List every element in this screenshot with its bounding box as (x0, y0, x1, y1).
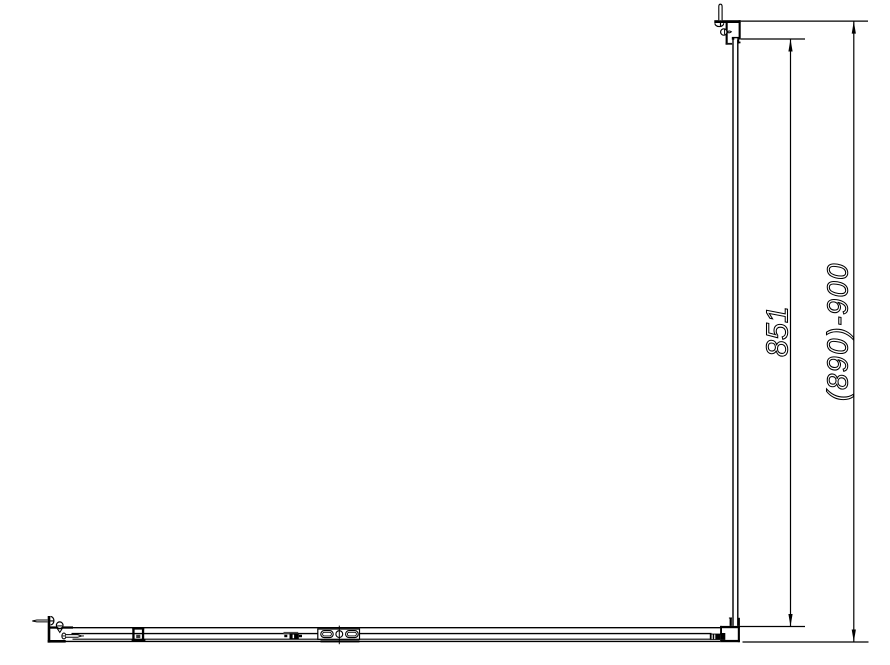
svg-text:(890)-900: (890)-900 (823, 262, 855, 401)
svg-text:851: 851 (761, 306, 795, 357)
